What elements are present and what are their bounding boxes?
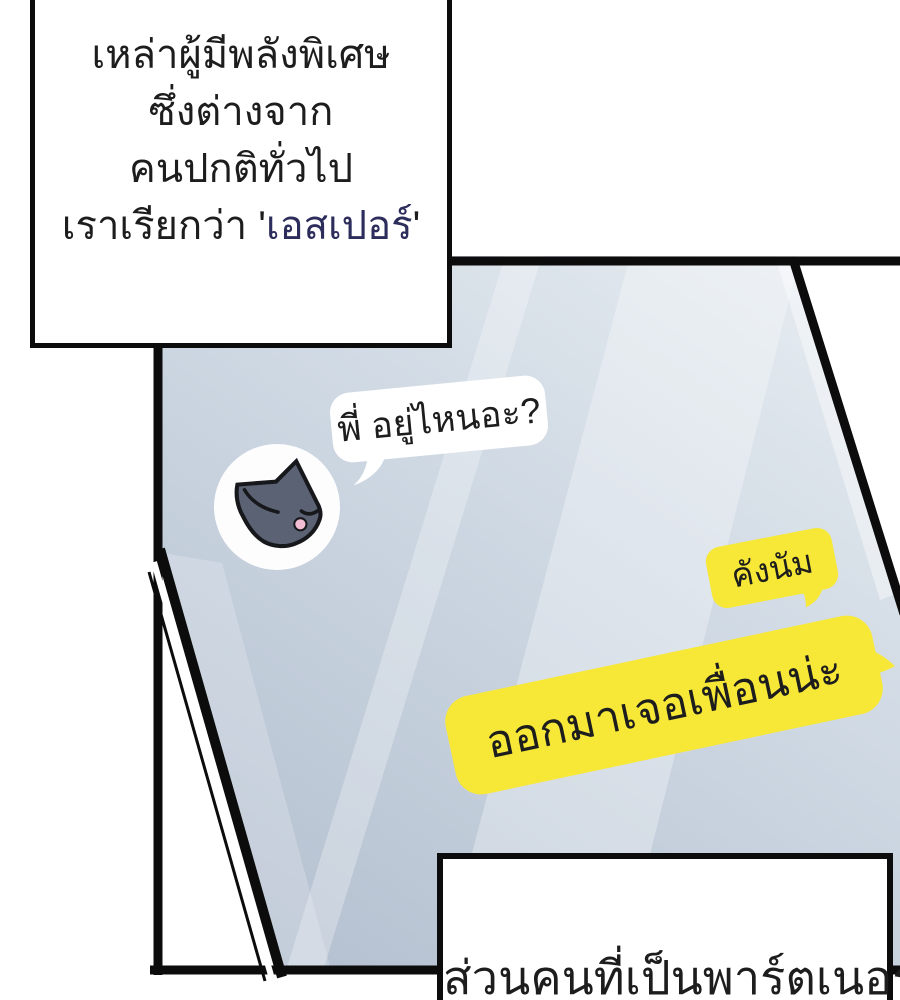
avatar	[214, 444, 340, 570]
cat-avatar-icon	[214, 444, 340, 570]
narration-box: เหล่าผู้มีพลังพิเศษ ซึ่งต่างจาก คนปกติทั…	[30, 0, 452, 348]
bubble-tail	[346, 450, 389, 488]
narration-line: ซึ่งต่างจาก	[35, 84, 447, 141]
narration-line: เหล่าผู้มีพลังพิเศษ	[35, 27, 447, 84]
narration-accent: เอสเปอร์	[266, 204, 413, 248]
narration-line4-prefix: เราเรียกว่า '	[62, 204, 266, 248]
narration-line4-suffix: '	[413, 204, 421, 248]
chat-incoming-text: พี่ อยู่ไหนอะ?	[335, 381, 543, 457]
narration-line: เราเรียกว่า 'เอสเปอร์'	[35, 198, 447, 255]
caption-box: ส่วนคนที่เป็นพาร์ตเนอร์	[437, 853, 893, 1000]
narration-line: คนปกติทั่วไป	[35, 141, 447, 198]
comic-page: พี่ อยู่ไหนอะ? คังนัม ออกมาเจอเพื่อนน่ะ …	[0, 0, 900, 1000]
bubble-tail	[860, 640, 900, 682]
caption-text: ส่วนคนที่เป็นพาร์ตเนอร์	[443, 951, 887, 1000]
